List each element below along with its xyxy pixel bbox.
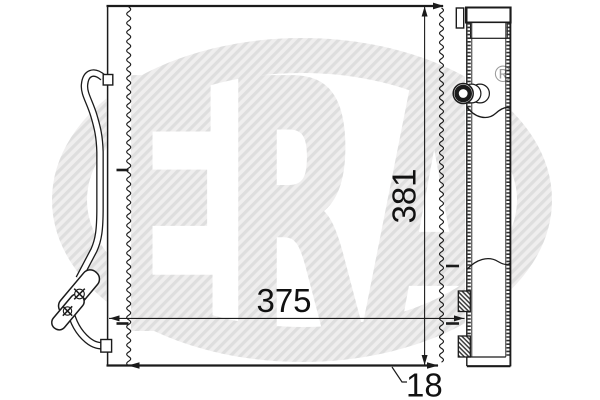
pipe-tank-fitting-lower — [101, 340, 112, 353]
tank-top-section — [471, 23, 508, 39]
era-logo-letters: ERA — [100, 12, 506, 400]
dimension-height-label: 381 — [386, 168, 423, 223]
pipe-tank-fitting-upper — [103, 75, 113, 86]
dimension-depth-label: 18 — [406, 367, 443, 400]
mounting-tab — [456, 8, 463, 28]
bracket-block-lower — [458, 336, 470, 357]
bracket-block-upper — [458, 291, 470, 312]
dimension-width-label: 375 — [256, 282, 311, 319]
condenser-technical-drawing: ERA ® — [0, 0, 600, 400]
drawing-canvas: ERA ® — [0, 0, 600, 400]
flange-bolt-icon — [74, 289, 85, 300]
tank-top-cap — [466, 8, 511, 23]
flange-bolt-icon — [63, 306, 72, 315]
